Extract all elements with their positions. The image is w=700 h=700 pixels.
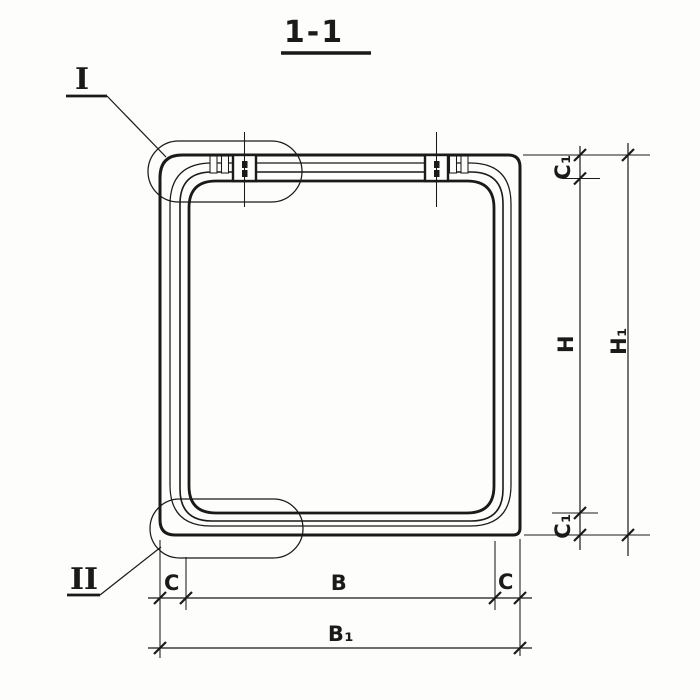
dim-label-c1-top: C₁: [551, 154, 575, 180]
section-drawing: 1-1 I: [0, 0, 700, 700]
detail-callout-I: I: [66, 62, 166, 157]
dim-label-c1-bottom: C₁: [551, 513, 575, 539]
dim-label-c-right: C: [498, 570, 514, 594]
section-view: [160, 132, 520, 535]
wall-line-outer: [170, 163, 511, 526]
joint-right-notch: [461, 156, 468, 173]
dim-label-h: H: [554, 335, 578, 353]
wall-line-middle: [180, 172, 503, 521]
detail-label-II: II: [70, 562, 98, 597]
detail-leader-I: [107, 96, 166, 157]
dim-label-h1: H₁: [607, 327, 631, 355]
outer-contour: [160, 155, 520, 535]
detail-label-I: I: [75, 62, 89, 97]
dim-group-right: C₁ H C₁ H₁: [523, 143, 650, 556]
joint-left: [210, 132, 256, 207]
joint-right-notch: [450, 156, 457, 173]
opening-contour: [189, 181, 494, 513]
joint-left-notch: [222, 156, 229, 173]
dim-label-b1: B₁: [328, 622, 354, 646]
dim-label-b: B: [331, 571, 348, 595]
detail-callout-II: II: [67, 547, 161, 597]
view-title: 1-1: [281, 15, 371, 53]
joint-right: [425, 132, 468, 207]
detail-circle-II: [150, 499, 303, 558]
dim-label-c-left: C: [164, 571, 180, 595]
joint-left-notch: [210, 156, 217, 173]
detail-leader-II: [100, 547, 161, 595]
dim-group-bottom: C B C B₁: [148, 539, 532, 658]
view-title-text: 1-1: [284, 15, 344, 50]
